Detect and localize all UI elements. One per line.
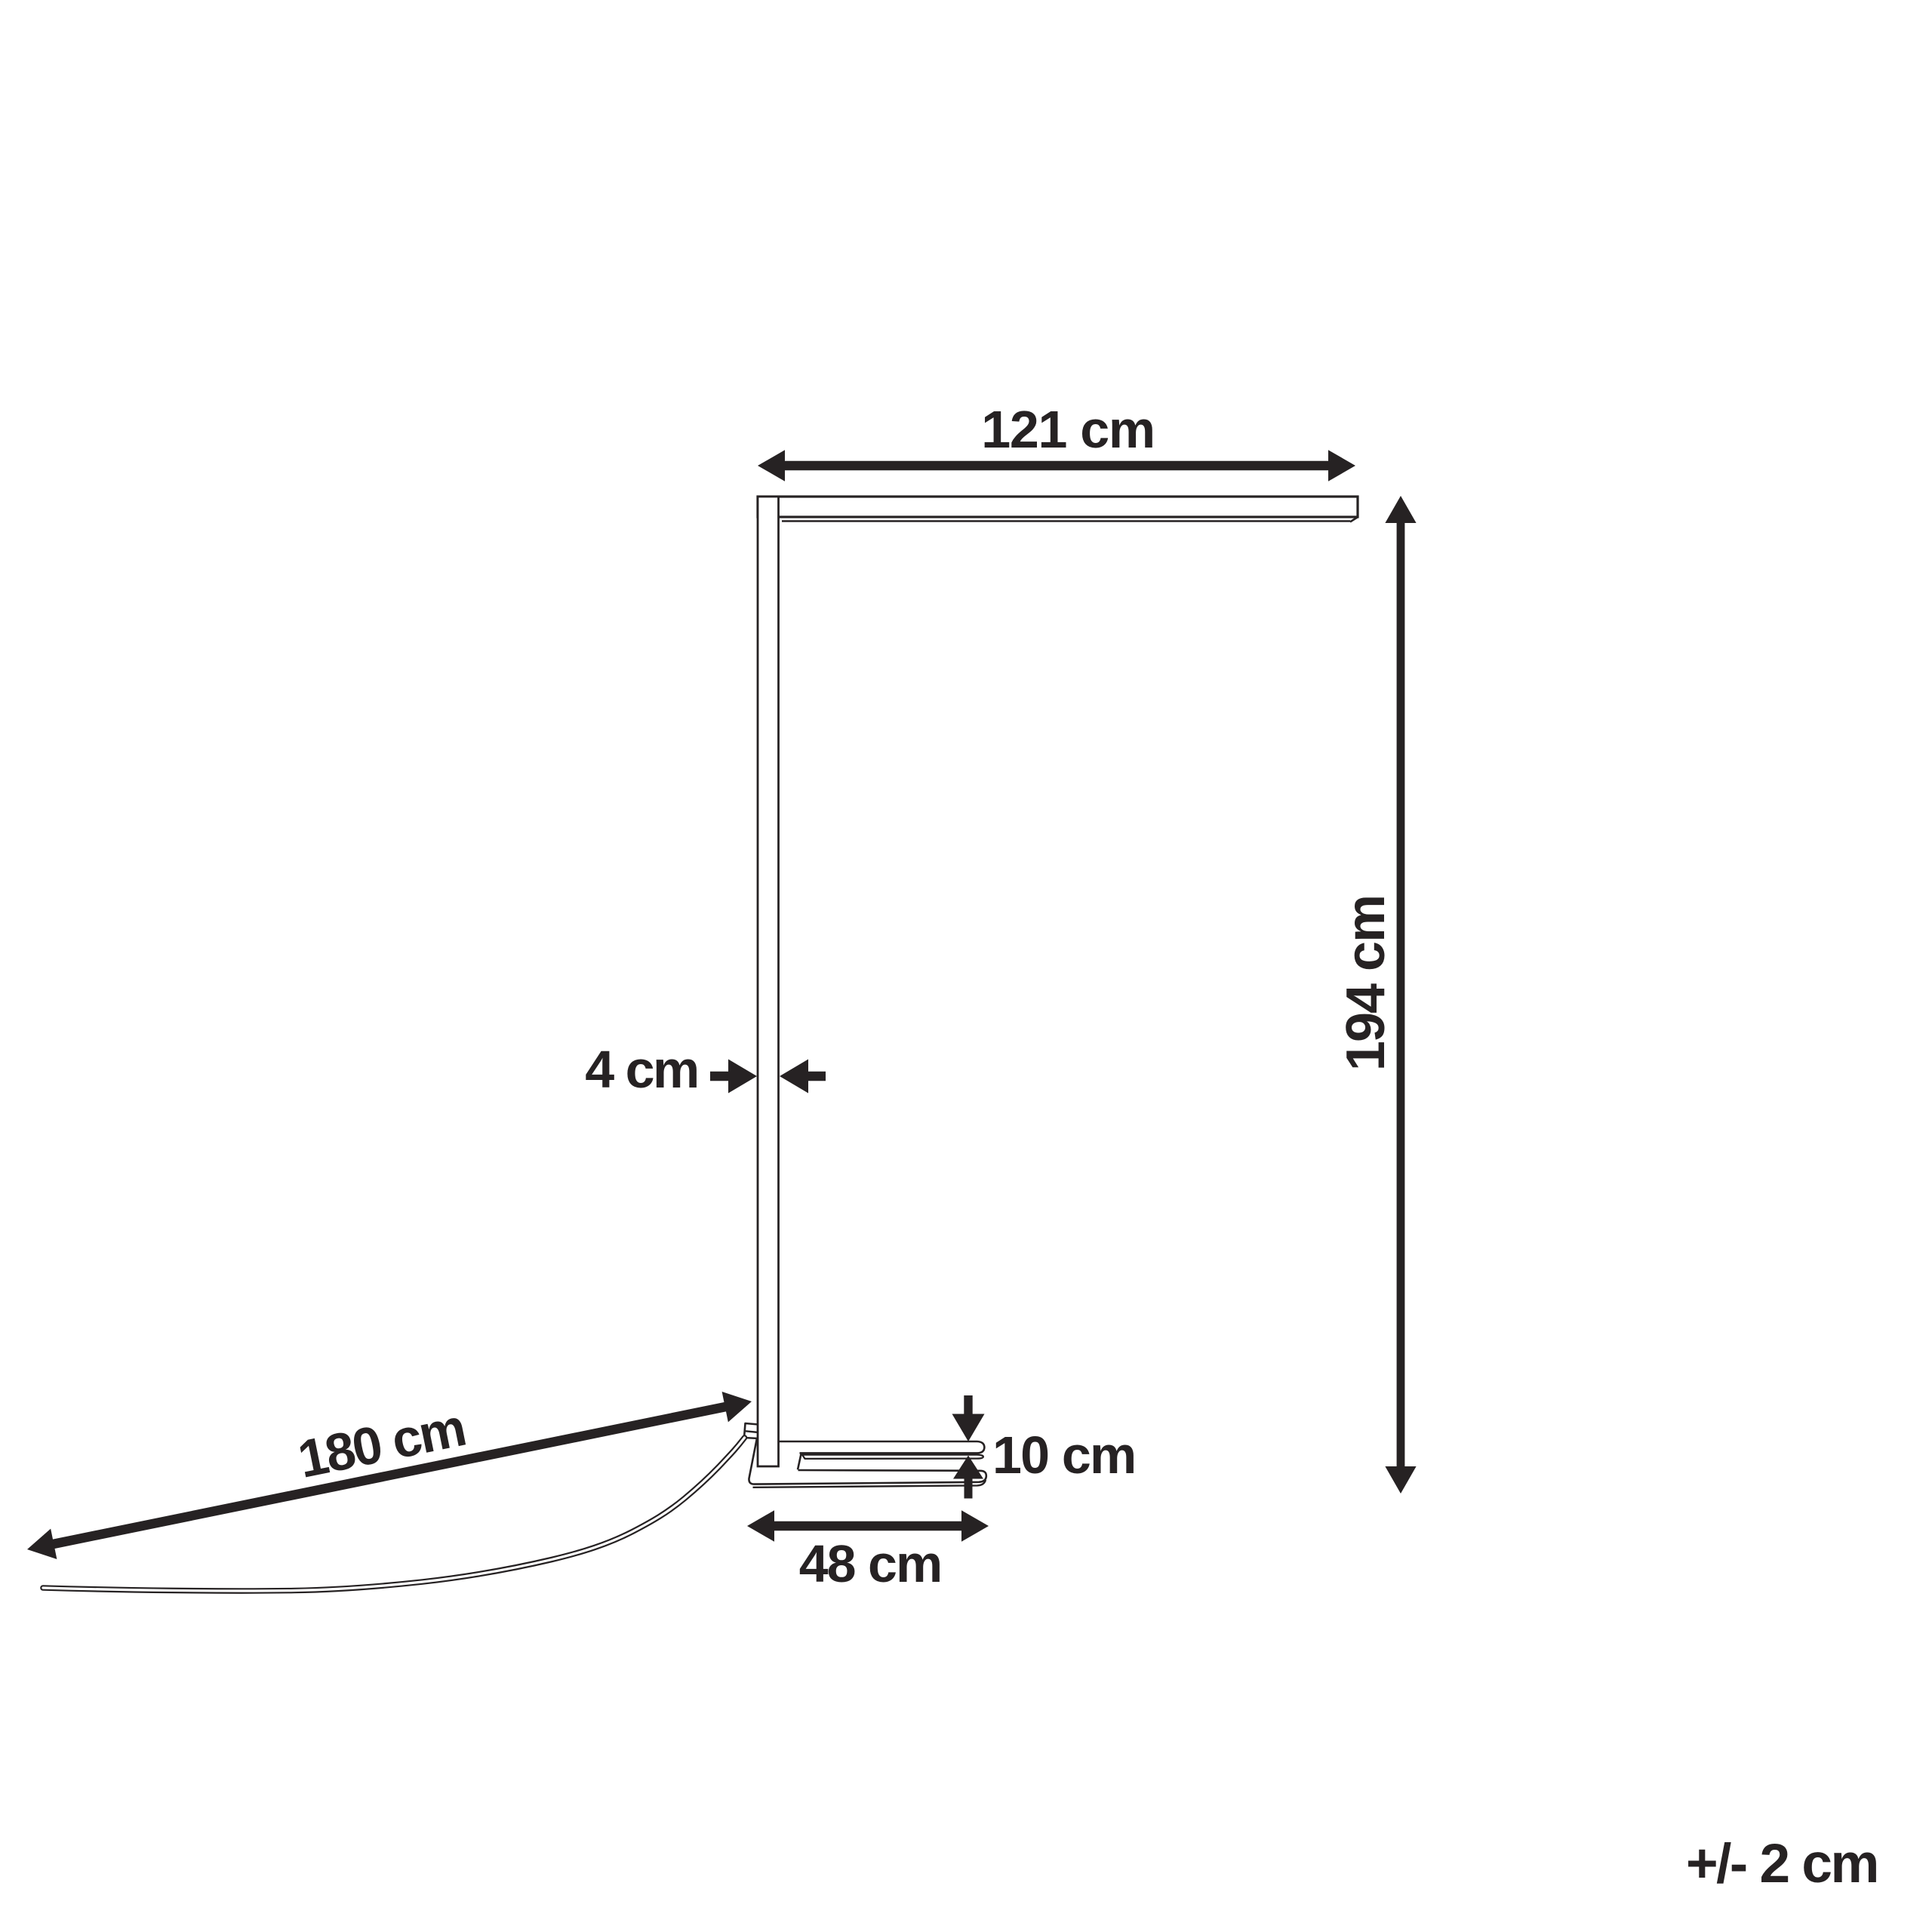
svg-text:194 cm: 194 cm [1336,896,1396,1071]
svg-text:+/- 2 cm: +/- 2 cm [1686,1833,1878,1894]
svg-text:48 cm: 48 cm [799,1534,941,1593]
svg-text:4 cm: 4 cm [585,1040,698,1099]
svg-text:121 cm: 121 cm [981,400,1155,459]
svg-text:10 cm: 10 cm [992,1426,1135,1484]
